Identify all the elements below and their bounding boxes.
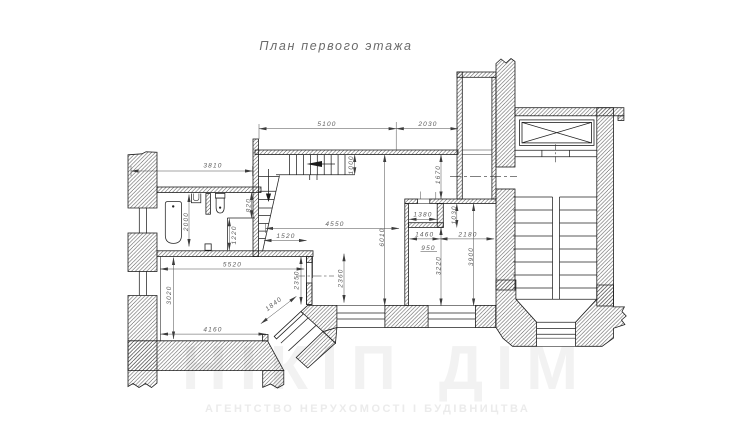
- svg-text:1380: 1380: [413, 212, 432, 219]
- svg-text:План первого этажа: План первого этажа: [259, 39, 412, 53]
- svg-text:5520: 5520: [223, 262, 242, 269]
- svg-text:3900: 3900: [468, 247, 475, 266]
- svg-text:АГЕНТСТВО НЕРУХОМОСТІ І БУДІВН: АГЕНТСТВО НЕРУХОМОСТІ І БУДІВНИЦТВА: [205, 403, 530, 415]
- svg-text:5100: 5100: [317, 121, 336, 128]
- svg-text:2000: 2000: [183, 212, 190, 232]
- svg-text:6010: 6010: [379, 227, 386, 246]
- svg-text:820: 820: [246, 198, 253, 212]
- svg-text:1000: 1000: [348, 155, 355, 174]
- svg-text:4160: 4160: [203, 327, 222, 334]
- svg-text:1670: 1670: [435, 165, 442, 184]
- svg-text:3810: 3810: [203, 163, 222, 170]
- svg-text:1030: 1030: [451, 205, 458, 224]
- svg-text:2360: 2360: [337, 268, 344, 288]
- svg-text:1460: 1460: [415, 232, 434, 239]
- svg-text:1220: 1220: [231, 225, 238, 244]
- svg-text:2350: 2350: [294, 270, 301, 290]
- svg-text:4550: 4550: [325, 221, 344, 228]
- svg-text:3220: 3220: [435, 256, 442, 275]
- svg-text:950: 950: [421, 245, 435, 252]
- svg-text:2030: 2030: [417, 121, 437, 128]
- svg-text:3020: 3020: [166, 285, 173, 304]
- svg-text:1520: 1520: [276, 233, 295, 240]
- svg-text:2180: 2180: [457, 232, 477, 239]
